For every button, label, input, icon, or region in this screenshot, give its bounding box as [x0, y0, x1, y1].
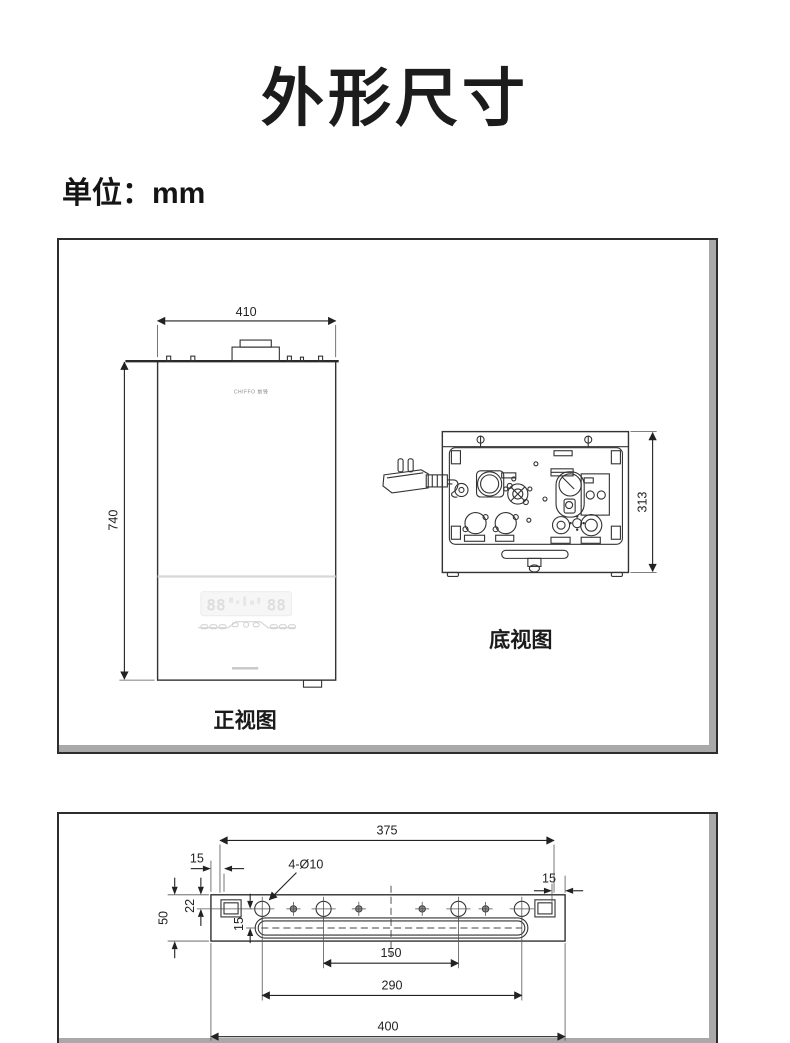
bracket-drawing: 375 15 15 4-Ø10: [59, 814, 716, 1043]
small-hole-icon: [352, 902, 366, 916]
bottom-tab: [303, 680, 321, 687]
page-root: 外形尺寸 单位：mm 410: [0, 0, 790, 1043]
brand-text: CHIFFO 前锋: [234, 388, 269, 395]
dim-label-375: 375: [377, 823, 398, 837]
appliance-outline: CHIFFO 前锋 88 88: [125, 340, 338, 687]
bottom-view-drawing: 313 底视图: [383, 432, 657, 652]
display-digits-left: 88: [206, 596, 225, 615]
views-drawing: 410: [59, 240, 716, 752]
unit-label: 单位：mm: [62, 168, 205, 212]
gas-valve-icon: [507, 483, 528, 504]
dim-holes-callout: 4-Ø10: [269, 858, 323, 900]
dim-label-410: 410: [236, 305, 257, 319]
dim-top-span-375: 375: [220, 823, 554, 892]
expansion-assembly-icon: [556, 472, 584, 517]
dim-label-50: 50: [157, 911, 171, 925]
dim-label-290: 290: [382, 978, 403, 992]
terminal-box-icon: [581, 474, 609, 515]
small-hole-icon: [479, 902, 493, 916]
dim-label-4xd10: 4-Ø10: [288, 858, 323, 872]
small-hole-icon: [415, 902, 429, 916]
pipe-connections: [463, 513, 602, 544]
bracket-slot: [255, 918, 528, 938]
front-view-label: 正视图: [213, 707, 276, 732]
bottom-view-label: 底视图: [489, 627, 552, 652]
power-plug-icon: [383, 459, 468, 497]
dim-label-15-slot: 15: [232, 917, 246, 931]
dim-label-740: 740: [106, 510, 120, 531]
dim-label-400: 400: [378, 1020, 399, 1034]
control-panel: 88 88: [198, 592, 296, 670]
mounting-holes: [250, 897, 534, 921]
views-panel: 410: [57, 238, 718, 754]
bracket-panel: 375 15 15 4-Ø10: [57, 812, 718, 1043]
dim-label-150: 150: [381, 946, 402, 960]
pump-assembly-icon: [477, 471, 504, 497]
dim-height-740: 740: [106, 362, 154, 680]
dim-width-410: 410: [158, 305, 336, 357]
dim-left-offset-15: 15: [190, 852, 244, 892]
screw-icons: [477, 436, 592, 447]
dim-label-313: 313: [636, 492, 650, 513]
bottom-logo-mark: [232, 667, 258, 670]
small-hole-icon: [286, 902, 300, 916]
dim-label-15-left: 15: [190, 852, 204, 866]
dim-label-22: 22: [183, 899, 197, 913]
button-row: [198, 622, 296, 629]
page-title: 外形尺寸: [0, 48, 790, 139]
dim-label-15-right: 15: [542, 872, 556, 886]
front-view-drawing: 410: [106, 305, 338, 733]
flue-collar-icon: [232, 340, 279, 361]
drain-fitting-icon: [502, 550, 568, 572]
dim-slot-offset-15: 15: [232, 894, 256, 943]
display-digits-right: 88: [267, 596, 286, 615]
keyhole-cutouts: [221, 900, 555, 917]
dim-right-offset-15: 15: [534, 872, 583, 902]
dim-depth-313: 313: [630, 432, 656, 573]
